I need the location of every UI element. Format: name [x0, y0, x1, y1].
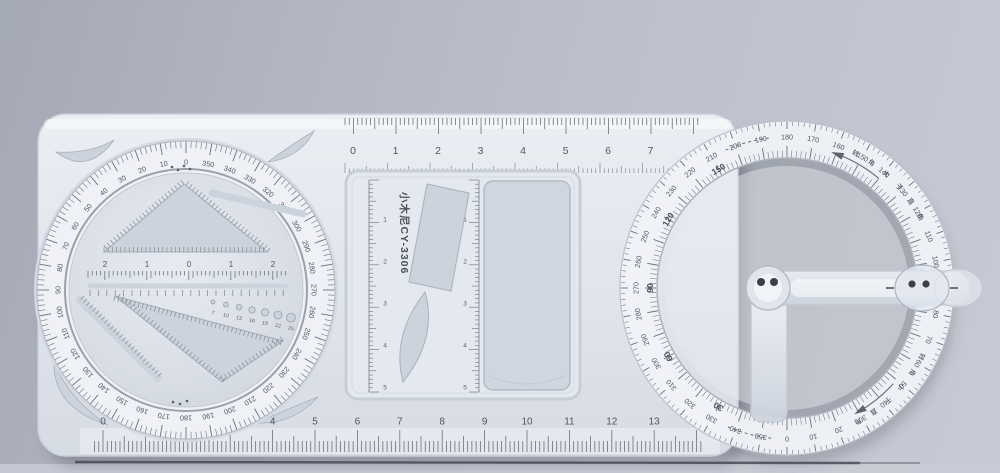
svg-text:4: 4	[270, 417, 276, 428]
svg-text:3: 3	[463, 301, 467, 308]
svg-text:6: 6	[605, 145, 611, 157]
svg-text:4: 4	[520, 145, 526, 157]
svg-text:90: 90	[53, 286, 62, 294]
svg-text:8: 8	[439, 417, 445, 428]
svg-text:10: 10	[159, 159, 168, 169]
svg-text:3: 3	[478, 145, 484, 157]
svg-text:7: 7	[397, 417, 403, 428]
svg-text:7: 7	[648, 145, 654, 157]
svg-text:5: 5	[563, 145, 569, 157]
svg-text:2: 2	[435, 145, 441, 157]
svg-text:1: 1	[393, 145, 399, 157]
svg-text:1: 1	[145, 260, 150, 269]
pivot-hub	[746, 266, 790, 310]
svg-text:0: 0	[350, 145, 356, 157]
svg-text:2: 2	[103, 260, 108, 269]
svg-text:2: 2	[271, 260, 276, 269]
svg-text:80: 80	[931, 310, 941, 319]
svg-text:4: 4	[463, 343, 467, 350]
multifunction-drawing-ruler: 0123456701234567891011121301020304050607…	[0, 0, 1000, 473]
svg-text:5: 5	[463, 385, 467, 392]
svg-text:1: 1	[229, 260, 234, 269]
photo-background: 0123456701234567891011121301020304050607…	[0, 0, 1000, 473]
arm-vertical	[751, 300, 788, 422]
svg-text:80: 80	[55, 263, 65, 272]
svg-text:270: 270	[310, 284, 319, 296]
svg-text:3: 3	[383, 301, 387, 308]
circle-template-22	[274, 311, 282, 319]
rectangle-window	[484, 181, 570, 390]
svg-text:10: 10	[809, 432, 818, 442]
svg-text:0: 0	[187, 260, 192, 269]
svg-text:5: 5	[383, 385, 387, 392]
svg-text:11: 11	[564, 417, 575, 428]
svg-text:6: 6	[355, 417, 361, 428]
brand-label: 小木尼CY-3306	[398, 191, 411, 274]
svg-text:90: 90	[645, 283, 655, 293]
svg-text:12: 12	[606, 417, 618, 428]
svg-text:2: 2	[383, 259, 387, 266]
circle-template-25	[287, 313, 296, 322]
svg-text:0: 0	[785, 435, 789, 444]
svg-text:13: 13	[649, 417, 661, 428]
svg-text:5: 5	[312, 417, 318, 428]
left-rotating-dial: 0102030405060708090100110120130140150160…	[34, 138, 338, 442]
circle-template-19	[261, 309, 268, 316]
circle-template-10	[224, 302, 229, 307]
svg-text:小木尼CY-3306: 小木尼CY-3306	[398, 191, 411, 274]
svg-text:180: 180	[781, 132, 793, 141]
svg-text:9: 9	[482, 417, 488, 428]
middle-template-panel: 12345小木尼CY-330612345	[346, 171, 580, 399]
circle-template-7	[211, 300, 215, 304]
circle-template-13	[236, 304, 242, 310]
svg-text:2: 2	[463, 259, 467, 266]
svg-text:1: 1	[383, 217, 387, 224]
svg-text:270: 270	[631, 282, 640, 294]
circle-template-16	[249, 307, 255, 313]
svg-text:4: 4	[383, 343, 387, 350]
table-edge-line	[75, 462, 920, 463]
svg-text:10: 10	[521, 417, 533, 428]
svg-text:180: 180	[180, 414, 192, 423]
